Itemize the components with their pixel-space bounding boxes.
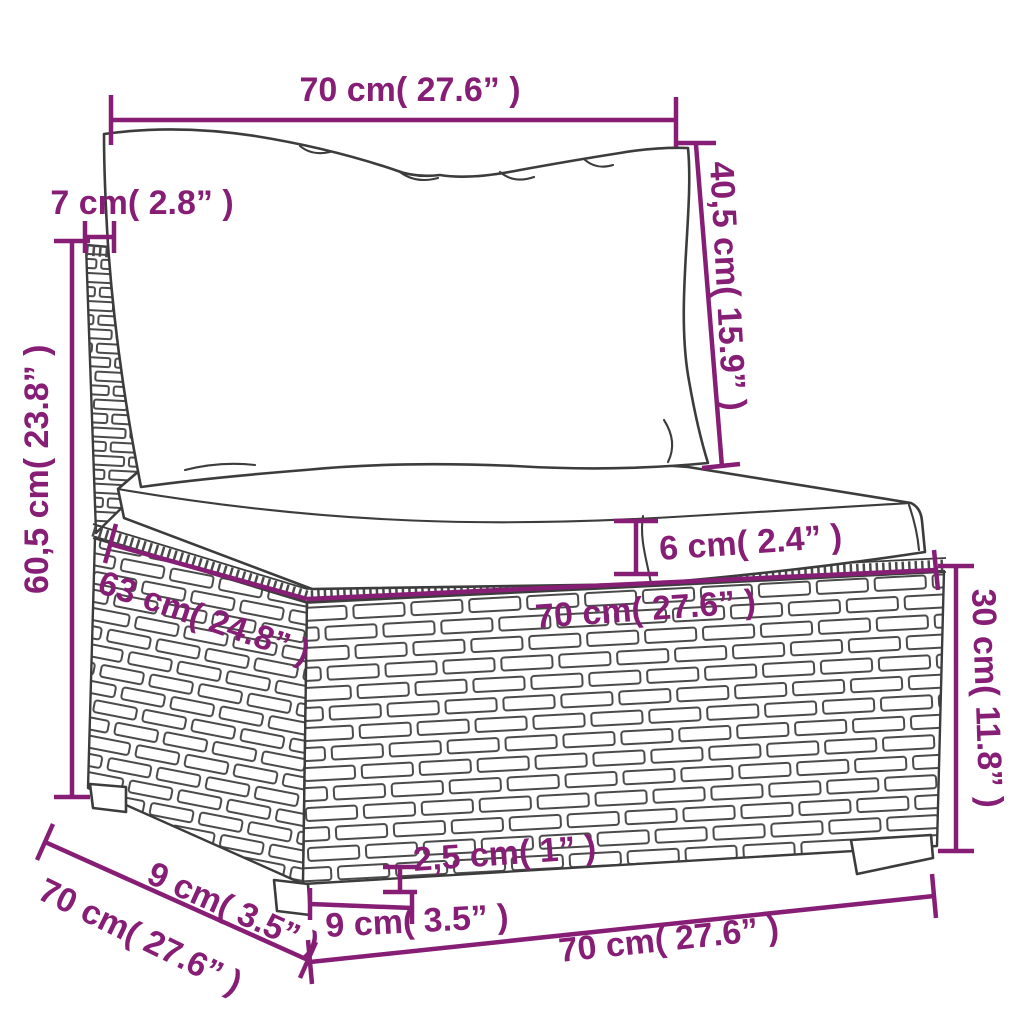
label-base-width-bottom: 70 cm( 27.6” ) [557,909,781,970]
dimension-diagram: 70 cm( 27.6” ) 40,5 cm( 15.9” ) 7 cm( 2.… [0,0,1024,1024]
label-total-height: 60,5 cm( 23.8” ) [18,345,56,594]
dim-base-height: 30 cm( 11.8” ) [938,566,1010,851]
label-back-cushion-height: 40,5 cm( 15.9” ) [702,160,753,411]
dim-total-height: 60,5 cm( 23.8” ) [18,241,90,797]
dim-foot-width: 9 cm( 3.5” ) [310,888,509,945]
foot-back-left [90,784,126,812]
label-back-width-top: 70 cm( 27.6” ) [299,71,520,109]
label-panel-thickness: 7 cm( 2.8” ) [50,184,233,222]
foot-front-right [851,835,933,874]
label-base-height: 30 cm( 11.8” ) [964,588,1010,808]
diagram-canvas: 70 cm( 27.6” ) 40,5 cm( 15.9” ) 7 cm( 2.… [0,0,1024,1024]
